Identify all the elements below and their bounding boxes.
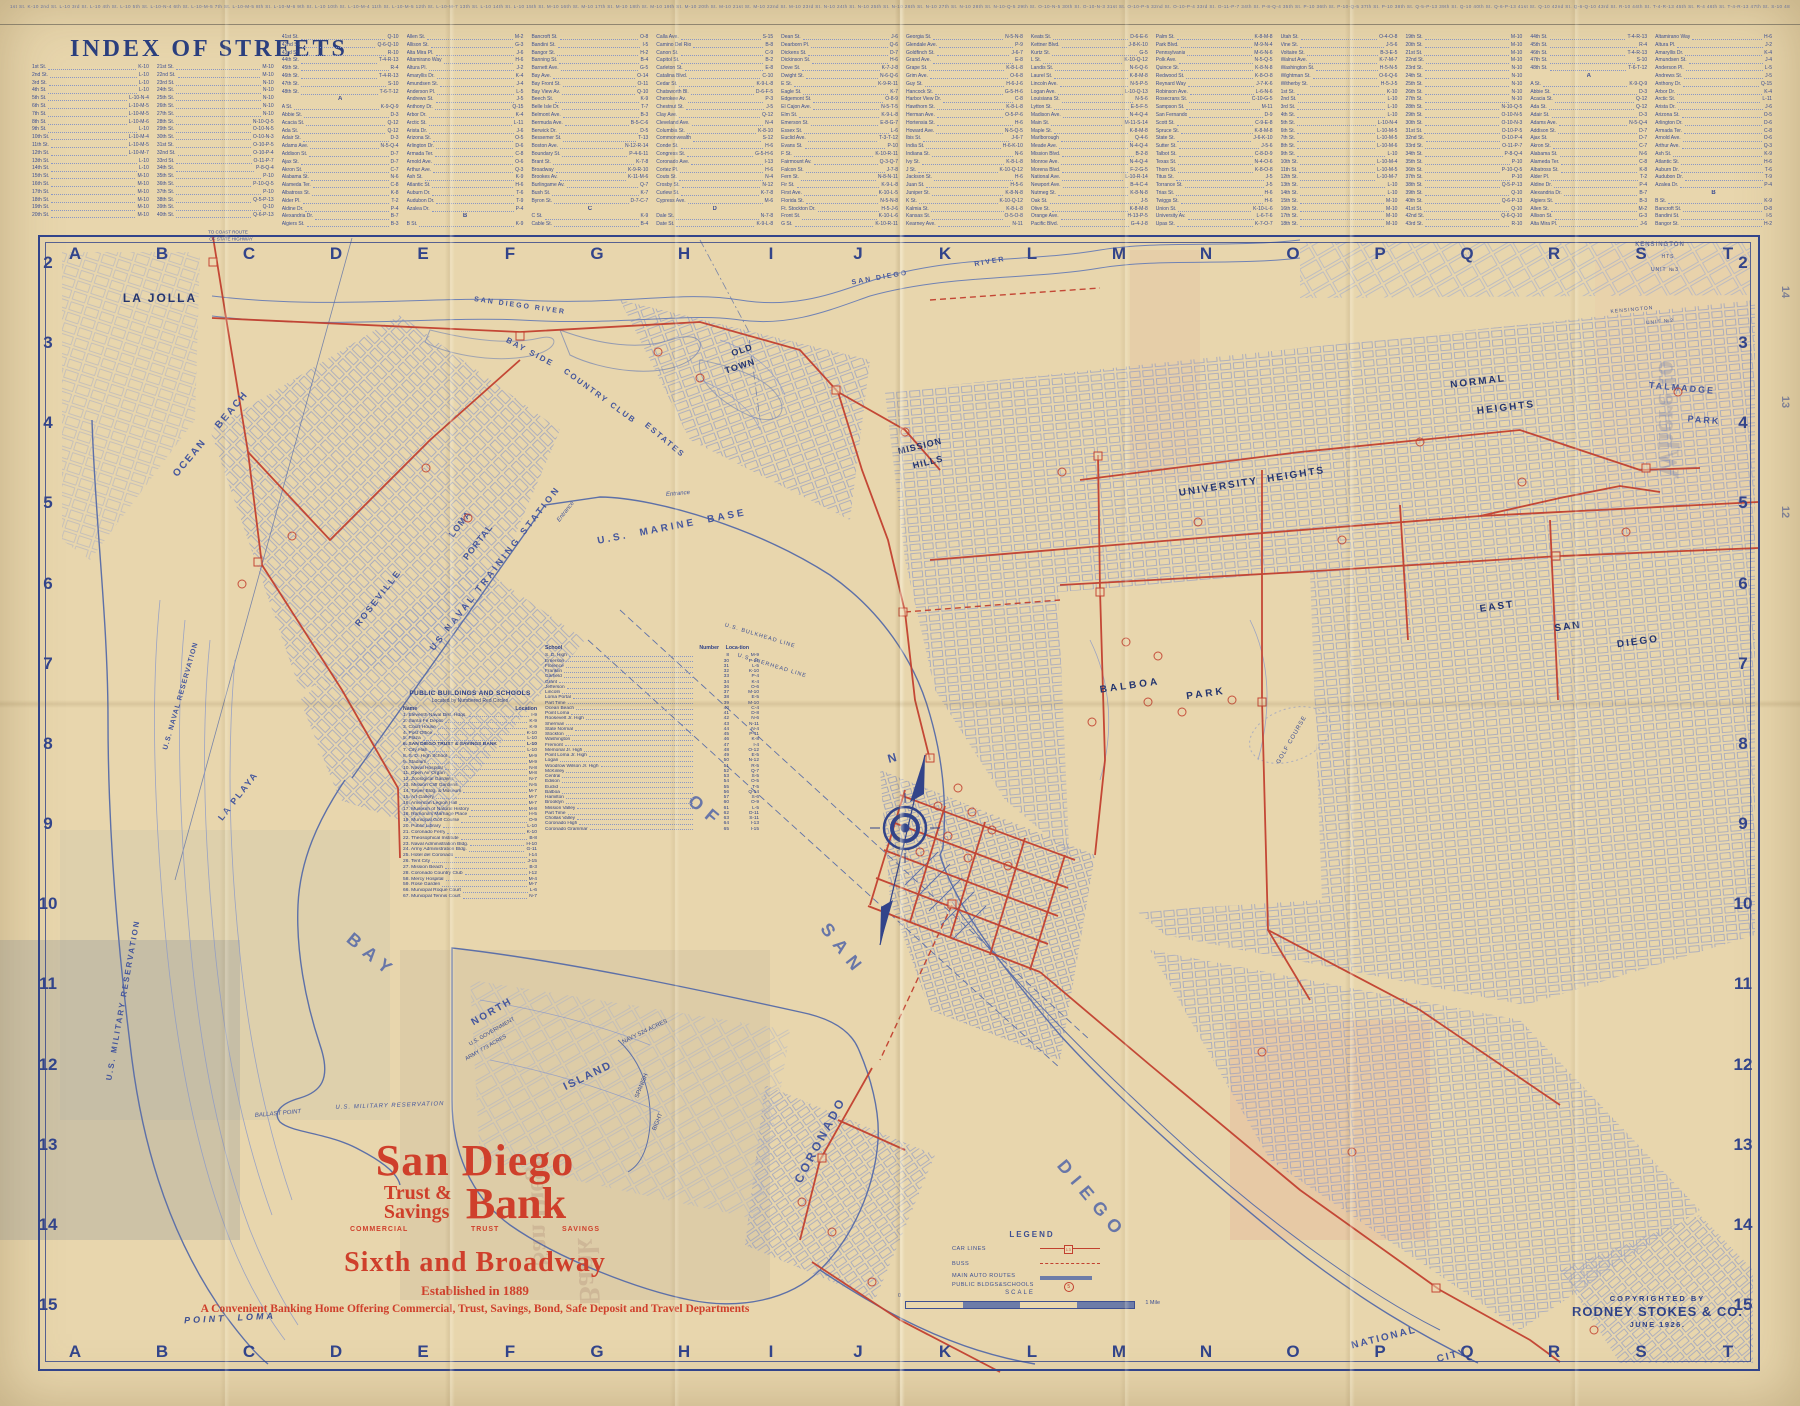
grid-label: F [505,244,515,264]
grid-label: B [156,1342,168,1362]
building-marker-icon [968,808,977,817]
legend: LEGEND CAR LINES13BUSSMAIN AUTO ROUTESPU… [952,1230,1112,1290]
building-marker-icon [1674,388,1683,397]
copyright-line1: COPYRIGHTED BY [1555,1294,1760,1303]
building-row: 67. Municipal Tennis CourtN-7 [403,894,537,900]
grid-label: I [769,244,774,264]
grid-label: 9 [1738,814,1747,834]
scale-bar: SCALE 0 1 Mile [905,1290,1135,1309]
grid-label: G [590,244,603,264]
building-marker-icon [944,832,953,841]
grid-label: 3 [43,333,52,353]
grid-label: C [243,1342,255,1362]
grid-label: N [1200,1342,1212,1362]
legend-row: PUBLIC BLDGS&SCHOOLS5 [952,1281,1112,1290]
grid-label: C [243,244,255,264]
school-row: Coronado Grammar65I-15 [545,827,759,832]
building-marker-icon [1154,652,1163,661]
grid-label: S [1635,1342,1646,1362]
grid-label: 2 [43,253,52,273]
grid-label: 8 [1738,734,1747,754]
building-marker-icon [798,1198,807,1207]
grid-label: T [1723,1342,1733,1362]
building-marker-icon [1194,518,1203,527]
car-swatch-icon: 13 [1040,1248,1100,1257]
bank-name-line1: San Diego [165,1140,785,1182]
grid-label: 6 [1738,574,1747,594]
building-marker-icon [288,532,297,541]
carline-marker-icon [1432,1284,1441,1293]
legend-row: BUSS [952,1257,1112,1272]
grid-label: 4 [1738,413,1747,433]
grid-label: H [678,1342,690,1362]
grid-label: 15 [39,1295,58,1315]
grid-label: 3 [1738,333,1747,353]
map-label: HTS [1662,254,1675,260]
carline-marker-icon [832,386,841,395]
grid-label: 11 [1734,974,1752,994]
grid-label: 11 [39,974,57,994]
grid-label: 13 [1734,1135,1753,1155]
building-marker-icon [1338,536,1347,545]
carline-marker-icon [948,900,957,909]
bank-dept-savings: SAVINGS [562,1226,600,1233]
grid-label: 13 [1779,396,1791,408]
grid-label: 5 [1738,493,1747,513]
grid-label: F [505,1342,515,1362]
grid-label: B [156,244,168,264]
carline-marker-icon [926,754,935,763]
grid-label: A [69,1342,81,1362]
bleed-through-text: Where to [1651,361,1685,480]
grid-label: D [330,244,342,264]
carline-marker-icon [818,1154,827,1163]
building-marker-icon [828,1228,837,1237]
carline-marker-icon [899,608,908,617]
building-marker-icon [1518,478,1527,487]
schools-col-number: Number [685,646,719,651]
grid-label: 4 [43,413,52,433]
grid-label: J [853,1342,862,1362]
scale-mile: 1 Mile [1145,1300,1160,1306]
building-marker-icon [464,514,473,523]
grid-label: 2 [1738,253,1747,273]
grid-label: M [1112,1342,1126,1362]
building-marker-icon [238,580,247,589]
building-marker-icon [1144,698,1153,707]
grid-label: 5 [43,493,52,513]
map-label: LA JOLLA [123,291,197,305]
carline-marker-icon [254,558,263,567]
grid-label: N [1200,244,1212,264]
grid-label: 6 [43,574,52,594]
building-marker-icon [1622,528,1631,537]
grid-label: 7 [1738,654,1747,674]
buildings-col-name: Name [403,706,417,712]
carline-marker-icon [1094,452,1103,461]
grid-label: 12 [39,1055,58,1075]
bank-tagline: A Convenient Banking Home Offering Comme… [165,1303,785,1315]
building-marker-icon [696,374,705,383]
grid-label: R [1548,244,1560,264]
bank-established: Established in 1889 [165,1283,785,1299]
grid-label: 9 [43,814,52,834]
bus-swatch-icon [1040,1263,1100,1272]
buildings-subtitle: Located by Numbered Red Circles [403,698,537,704]
building-marker-icon [964,854,973,863]
legend-title: LEGEND [952,1230,1112,1239]
schools-col-location: Loca-tion [719,646,749,651]
building-marker-icon [988,826,997,835]
building-marker-icon [1122,638,1131,647]
grid-label: L [1027,244,1037,264]
schools-col-school: School [545,646,685,651]
grid-label: L [1027,1342,1037,1362]
copyright-line2: RODNEY STOKES & CO. [1555,1304,1760,1319]
legend-row: MAIN AUTO ROUTES [952,1272,1112,1281]
grid-label: 14 [1779,286,1791,298]
building-marker-icon [422,464,431,473]
building-marker-icon [1058,468,1067,477]
grid-label: I [769,1342,774,1362]
map-label: TO COAST ROUTE [208,230,248,235]
grid-label: G [590,1342,603,1362]
map-label: OF STATE HIGHWAY [209,237,253,242]
scale-bar-graphic: 0 1 Mile [905,1301,1135,1309]
building-marker-icon [954,784,963,793]
bank-address: Sixth and Broadway [165,1247,785,1279]
carline-marker-icon [1096,588,1105,597]
grid-label: O [1286,244,1299,264]
building-marker-icon [654,348,663,357]
grid-label: 10 [1734,894,1753,914]
map-label: KENSINGTON [1635,242,1685,248]
copyright-line3: JUNE 1926. [1555,1320,1760,1329]
grid-label: A [69,244,81,264]
grid-label: Q [1460,244,1473,264]
grid-label: D [330,1342,342,1362]
building-marker-icon [1348,1148,1357,1157]
bank-advertisement: San Diego Trust & Savings Bank COMMERCIA… [165,1140,785,1315]
map-label: UNIT №3 [1651,267,1679,273]
grid-label: K [939,1342,951,1362]
grid-label: 7 [43,654,52,674]
schools-panel: School Number Loca-tion S. D. High8M-9Em… [545,646,759,832]
copyright-block: COPYRIGHTED BY RODNEY STOKES & CO. JUNE … [1555,1294,1760,1329]
bank-name-bank: Bank [466,1184,566,1224]
scale-label: SCALE [905,1290,1135,1296]
public-buildings-panel: PUBLIC BUILDINGS AND SCHOOLS Located by … [403,690,537,900]
grid-label: O [1286,1342,1299,1362]
buildings-col-location: Location [515,706,537,712]
building-marker-icon [1004,862,1013,871]
buildings-title: PUBLIC BUILDINGS AND SCHOOLS [403,690,537,697]
grid-label: H [678,244,690,264]
building-marker-icon [1178,708,1187,717]
grid-label: K [939,244,951,264]
grid-label: E [417,1342,428,1362]
bank-dept-trust: TRUST [471,1226,499,1233]
carline-marker-icon [1642,464,1651,473]
building-marker-icon [1228,696,1237,705]
grid-label: 14 [39,1215,58,1235]
building-marker-icon [901,428,910,437]
grid-label: 14 [1734,1215,1753,1235]
carline-marker-icon [1552,552,1561,561]
grid-label: M [1112,244,1126,264]
building-marker-icon [1088,718,1097,727]
legend-row: CAR LINES13 [952,1242,1112,1257]
carline-marker-icon [1258,698,1267,707]
building-marker-icon [868,1278,877,1287]
carline-marker-icon [516,332,525,341]
bank-dept-commercial: COMMERCIAL [350,1226,408,1233]
grid-label: 12 [1734,1055,1753,1075]
circ-swatch-icon: 5 [1040,1282,1100,1290]
building-marker-icon [1258,1048,1267,1057]
grid-label: 12 [1779,506,1791,518]
scale-zero: 0 [898,1293,901,1299]
grid-label: J [853,244,862,264]
building-marker-icon [934,802,943,811]
carline-marker-icon [209,258,218,267]
grid-label: E [417,244,428,264]
grid-label: 8 [43,734,52,754]
building-marker-icon [1416,438,1425,447]
grid-label: P [1374,244,1385,264]
bank-name-savings: Savings [384,1203,452,1222]
grid-label: 10 [39,894,58,914]
grid-label: T [1723,244,1733,264]
map-sheet: 1st St. K-10 2nd St. L-10 3rd St. L-10 4… [0,0,1800,1406]
grid-label: R [1548,1342,1560,1362]
grid-label: 13 [39,1135,58,1155]
building-marker-icon [916,848,925,857]
auto-swatch-icon [1040,1276,1092,1280]
